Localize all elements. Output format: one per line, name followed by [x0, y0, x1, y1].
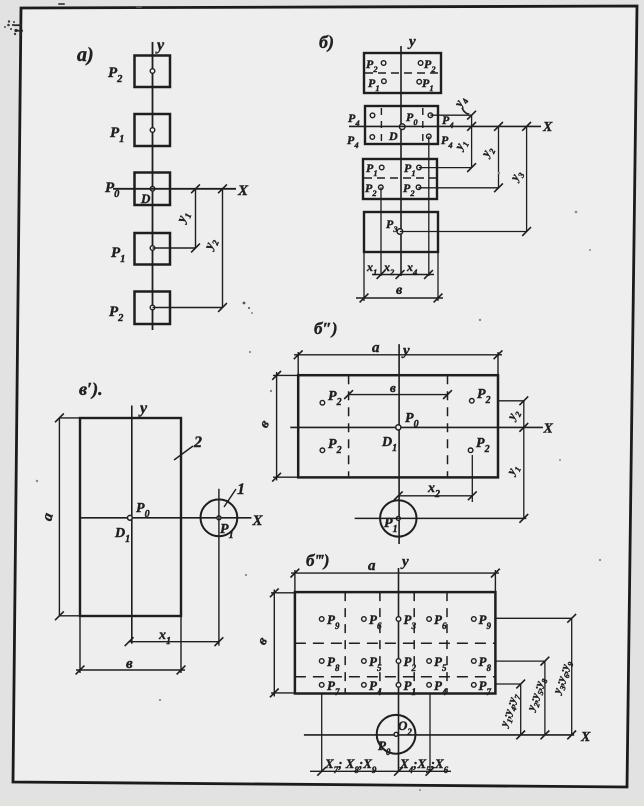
svg-text:а: а — [372, 340, 380, 356]
svg-text:у: у — [407, 34, 416, 50]
svg-text:б″): б″) — [314, 319, 338, 338]
svg-text:Х: Х — [252, 513, 264, 529]
svg-text:D: D — [388, 129, 398, 143]
svg-text:D: D — [140, 191, 151, 206]
svg-text:Х: Х — [237, 183, 249, 199]
svg-text:б): б) — [319, 32, 334, 53]
svg-text:в: в — [396, 283, 403, 298]
svg-text:у: у — [400, 554, 409, 570]
svg-text:Х: Х — [580, 730, 591, 745]
svg-text:у: у — [155, 37, 165, 54]
svg-text:у: у — [138, 400, 148, 417]
svg-text:а): а) — [77, 44, 94, 66]
svg-text:в: в — [126, 656, 133, 672]
svg-text:б‴): б‴) — [306, 551, 330, 570]
svg-text:2: 2 — [193, 434, 202, 451]
svg-text:в′).: в′). — [79, 379, 103, 400]
svg-text:а: а — [368, 558, 376, 574]
svg-text:Х: Х — [542, 120, 553, 135]
svg-text:у: у — [401, 343, 410, 359]
svg-text:в: в — [390, 380, 396, 395]
svg-text:Х: Х — [543, 422, 554, 437]
svg-text:1: 1 — [237, 481, 245, 498]
